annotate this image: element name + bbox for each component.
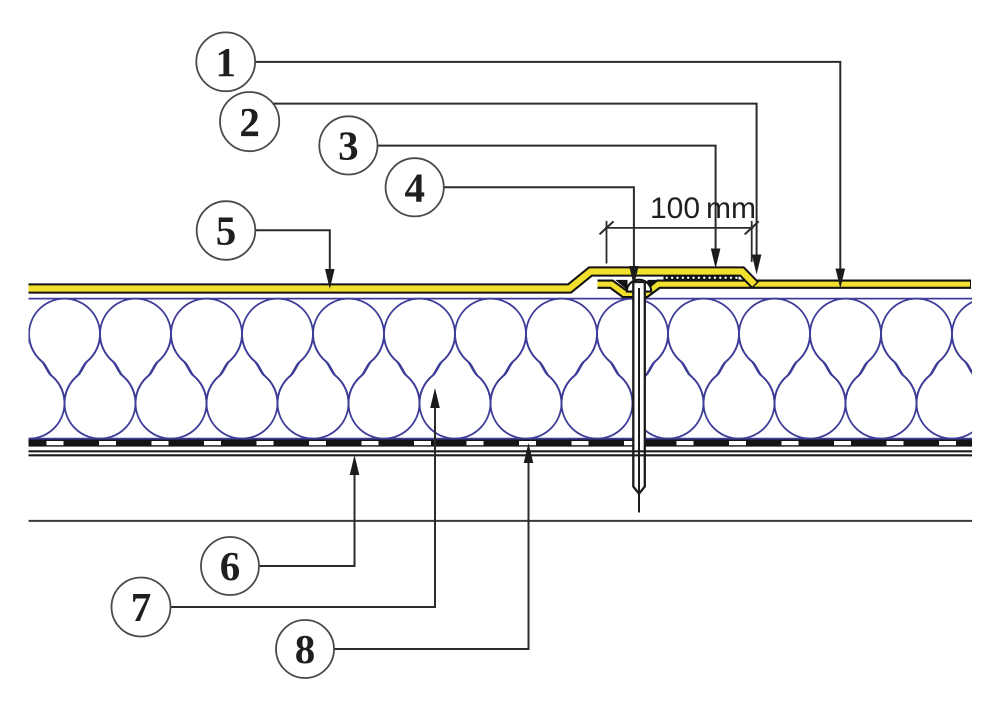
svg-text:2: 2 [239,99,260,145]
svg-text:6: 6 [220,543,241,589]
svg-text:7: 7 [131,584,152,630]
svg-text:4: 4 [404,165,425,211]
svg-text:1: 1 [215,39,236,85]
svg-text:100 mm: 100 mm [650,192,756,225]
svg-text:3: 3 [338,123,359,169]
svg-text:8: 8 [295,626,316,672]
svg-text:5: 5 [216,208,237,254]
